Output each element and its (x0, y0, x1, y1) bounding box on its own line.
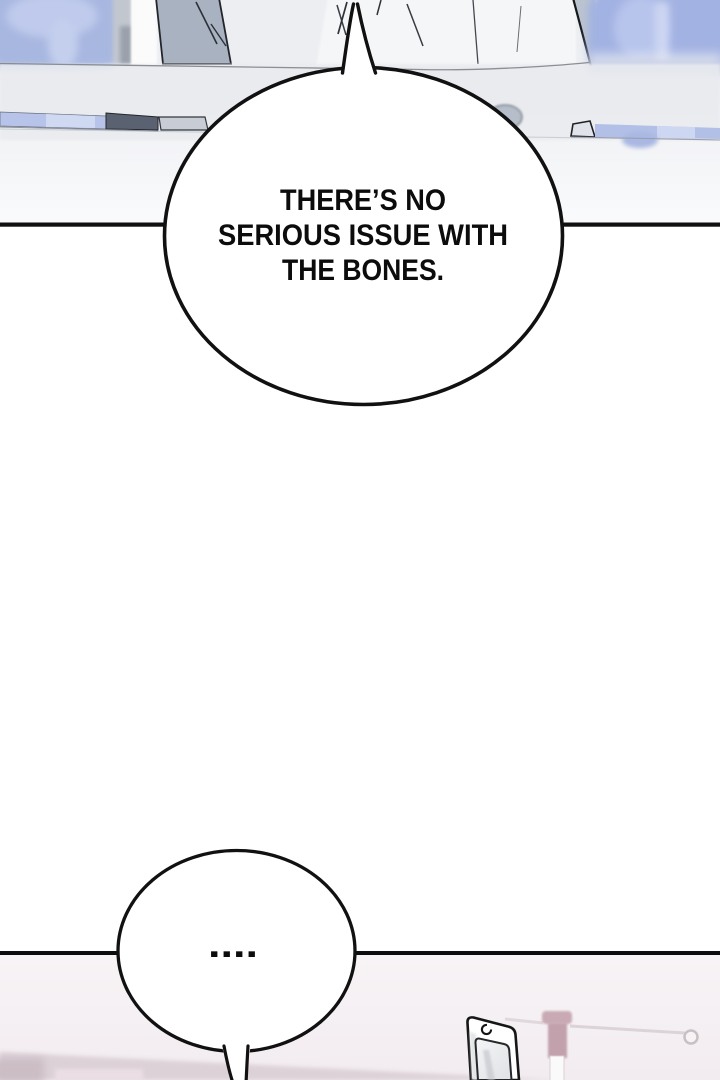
panel-2 (0, 951, 720, 1080)
monitor-body (156, 0, 231, 64)
figure-right-crease (655, 2, 669, 64)
bubble-2-text: .... (208, 924, 258, 966)
bubble-2-tail-right-stroke (246, 1046, 248, 1080)
iv-hook (685, 1031, 698, 1044)
chair-band-dark (120, 26, 132, 64)
figure-left-crease (48, 19, 78, 69)
panel-2-border (0, 951, 720, 955)
iv-pole-top (548, 1023, 567, 1058)
monitor-shape (156, 0, 231, 64)
floor-light-patch (55, 1069, 143, 1080)
bubble-1-line-1: THERE’S NO (280, 184, 446, 217)
desk-item-trapezoid (571, 121, 595, 137)
bubble-1-line-2: SERIOUS ISSUE WITH (218, 219, 508, 252)
floor-corner-dark (0, 1058, 44, 1080)
desk-item-blue-blob (622, 132, 658, 148)
comic-artwork: .... THERE’S NO SERIOUS ISSUE WITH THE B… (0, 0, 720, 1080)
iv-pole-cap (542, 1011, 572, 1024)
desk-item-blue-strip-highlight (46, 114, 95, 128)
wall-strip (131, 0, 157, 66)
comic-page: .... THERE’S NO SERIOUS ISSUE WITH THE B… (0, 0, 720, 1080)
desk-item-blue-strip-right-highlight (657, 126, 695, 138)
iv-bag (467, 1017, 519, 1080)
desk-item-gray-tray (159, 117, 208, 130)
iv-pole-lower (550, 1056, 564, 1080)
figure-left-blur (0, 0, 124, 69)
iv-bag-hanger-hole (482, 1025, 491, 1034)
bubble-1-line-3: THE BONES. (282, 254, 444, 287)
